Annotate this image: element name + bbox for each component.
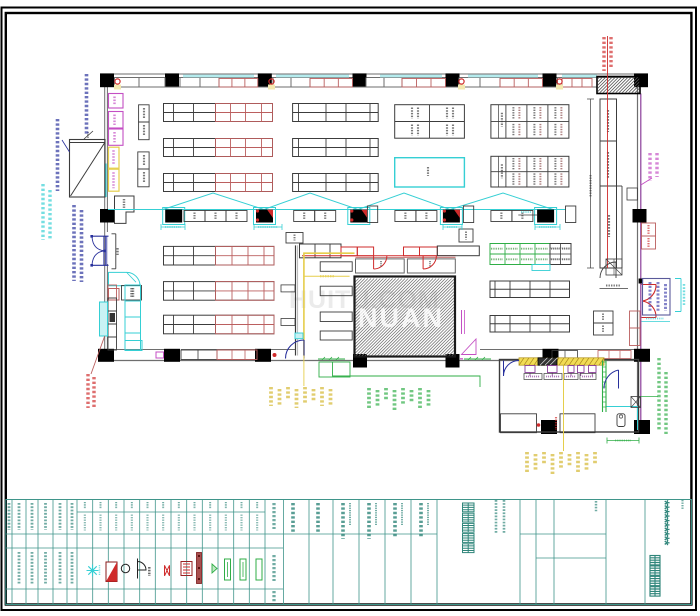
svg-text:NUAN: NUAN (358, 303, 444, 333)
svg-text:**********: ********** (657, 500, 672, 546)
